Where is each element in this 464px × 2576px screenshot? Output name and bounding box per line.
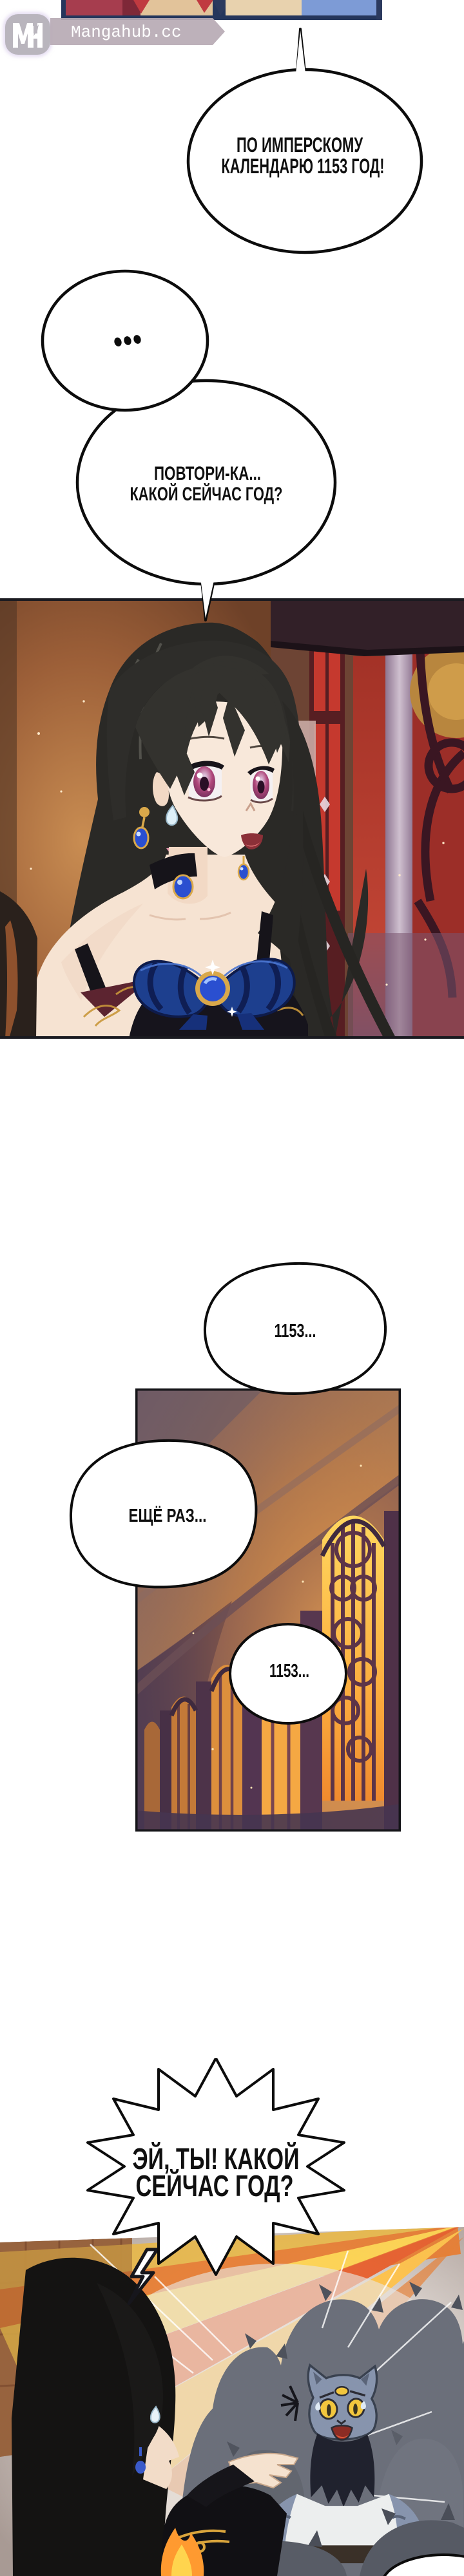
svg-text:ПО ИМПЕРСКОМУ: ПО ИМПЕРСКОМУ (237, 133, 363, 156)
svg-text:ЕЩЁ РАЗ...: ЕЩЁ РАЗ... (129, 1505, 207, 1526)
svg-text:Mangahub.cc: Mangahub.cc (71, 23, 182, 42)
svg-text:КАКОЙ СЕЙЧАС ГОД?: КАКОЙ СЕЙЧАС ГОД? (130, 483, 283, 505)
svg-text:1153...: 1153... (275, 1321, 316, 1341)
svg-text:ПОВТОРИ-КА...: ПОВТОРИ-КА... (154, 463, 261, 484)
svg-text:КАЛЕНДАРЮ 1153 ГОД!: КАЛЕНДАРЮ 1153 ГОД! (222, 155, 385, 178)
svg-text:СЕЙЧАС ГОД?: СЕЙЧАС ГОД? (136, 2169, 294, 2202)
svg-text:1153...: 1153... (269, 1661, 309, 1681)
